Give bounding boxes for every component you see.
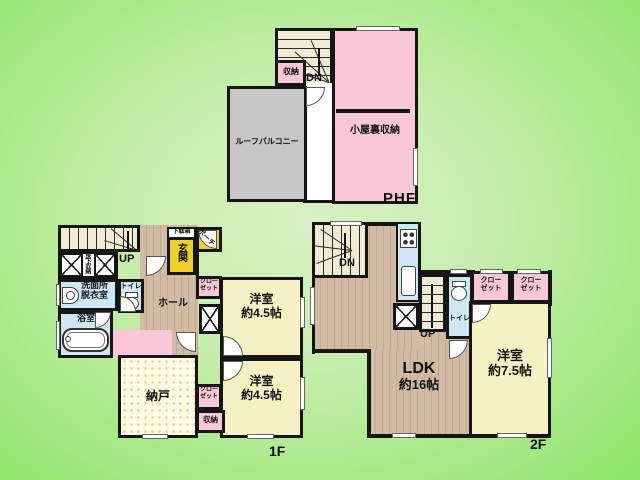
phf-dn-label: DN xyxy=(306,72,322,85)
f2-closet-1-label: クロー ゼット xyxy=(472,277,510,293)
window xyxy=(450,269,467,274)
f1-washroom-label: 洗面所 脱衣室 xyxy=(81,280,108,301)
window xyxy=(247,434,274,439)
phf-floor-label: PHF xyxy=(383,190,416,207)
window xyxy=(310,287,315,325)
window xyxy=(56,284,60,306)
f1-washroom-line2: 脱衣室 xyxy=(81,290,108,300)
f1-up-arrow xyxy=(127,231,129,252)
f1-hall-label: ホール xyxy=(150,298,196,310)
phf-attic-inner-wall xyxy=(336,109,410,113)
window xyxy=(142,434,168,439)
f1-xbox xyxy=(199,304,221,334)
f2-dn-label: DN xyxy=(339,257,355,270)
f1-shoe-cabinet-label: 下駄箱 xyxy=(168,229,195,236)
window xyxy=(56,321,60,350)
washbasin-bowl-icon xyxy=(66,291,75,300)
f2-closet-2-label: クロー ゼット xyxy=(512,277,550,293)
f2-floor-label: 2F xyxy=(530,436,546,452)
toilet-bowl-icon xyxy=(451,286,467,301)
kitchen-sink-icon xyxy=(401,266,416,296)
f2-up-label: UP xyxy=(420,328,435,341)
phf-storage-label: 収納 xyxy=(277,67,305,76)
f2-ldk-label: LDK 約16帖 xyxy=(386,360,452,393)
window xyxy=(497,433,527,438)
f1-toilet-label: トイレ xyxy=(119,283,143,291)
f1-bath-label: 浴室 xyxy=(66,313,106,323)
f1-storage-xbox xyxy=(94,253,116,277)
window xyxy=(517,269,541,274)
f2-bedroom-label: 洋室 約7.5帖 xyxy=(477,349,543,379)
f1-corridor xyxy=(113,330,172,358)
phf-balcony-label: ルーフバルコニー xyxy=(228,137,306,146)
f1-washroom-line1: 洗面所 xyxy=(81,280,108,290)
f1-closet-top-label: クロー ゼット xyxy=(196,279,222,293)
f1-underfloor-label: 床下収納 xyxy=(83,253,90,278)
f2-wall xyxy=(367,349,371,438)
f1-bedroom-b-label: 洋室 約4.5帖 xyxy=(221,375,302,403)
f1-floor-label: 1F xyxy=(269,443,285,459)
stove-icon xyxy=(400,229,417,248)
f2-xbox xyxy=(393,303,419,330)
window xyxy=(356,26,400,31)
f1-storage-label: 収納 xyxy=(196,416,225,425)
phf-attic-label: 小屋裏収納 xyxy=(332,125,418,137)
f1-storage-xbox xyxy=(60,253,83,277)
f1-up-label: UP xyxy=(119,253,134,266)
window xyxy=(547,338,552,378)
bath-faucet-icon xyxy=(65,336,71,342)
f1-entrance-label: 玄関 xyxy=(175,243,187,269)
f1-bedroom-a-label: 洋室 約4.5帖 xyxy=(221,293,302,321)
f1-closet-bottom-label: クロー ゼット xyxy=(196,387,222,401)
f2-dn-arrow xyxy=(344,233,346,258)
window xyxy=(480,269,503,274)
floorplan-canvas: 収納 DN 小屋裏収納 ルーフバルコニー PHF UP xyxy=(0,0,640,480)
phf-attic-room xyxy=(332,28,418,204)
window xyxy=(413,148,418,186)
f1-storage-room-label: 納戸 xyxy=(130,390,186,404)
f2-up-arrow xyxy=(431,284,433,328)
f2-wall xyxy=(312,349,370,353)
window xyxy=(392,433,416,438)
f1-hall-east-wall xyxy=(196,250,199,279)
f2-toilet-label: トイレ xyxy=(447,315,472,323)
window xyxy=(330,221,362,226)
